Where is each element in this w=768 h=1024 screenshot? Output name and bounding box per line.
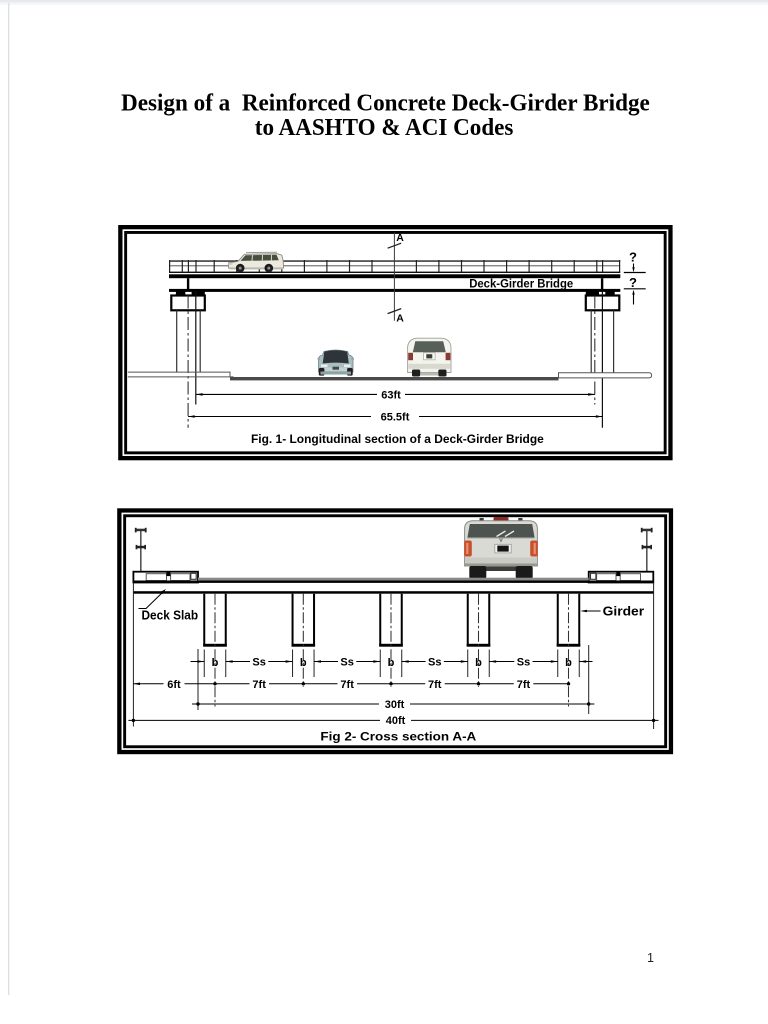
svg-text:Girder: Girder: [603, 604, 645, 618]
svg-text:b: b: [565, 657, 572, 669]
svg-text:7ft: 7ft: [517, 679, 531, 691]
svg-text:Ss: Ss: [517, 657, 530, 669]
svg-text:Ss: Ss: [252, 657, 265, 669]
svg-text:30ft: 30ft: [385, 699, 405, 711]
svg-text:7ft: 7ft: [252, 679, 266, 691]
svg-text:b: b: [388, 657, 395, 669]
svg-text:Deck-Girder Bridge: Deck-Girder Bridge: [469, 278, 573, 290]
svg-text:?: ?: [629, 249, 637, 264]
svg-text:7ft: 7ft: [340, 679, 354, 691]
svg-text:b: b: [212, 657, 219, 669]
svg-text:b: b: [300, 657, 307, 669]
svg-text:Fig 2- Cross section A-A: Fig 2- Cross section A-A: [320, 730, 476, 744]
svg-text:Ss: Ss: [428, 657, 441, 669]
svg-text:Design of a Reinforced Concre: Design of a Reinforced Concrete Deck-Gir…: [121, 90, 650, 117]
svg-text:65.5ft: 65.5ft: [381, 411, 410, 423]
svg-text:A: A: [396, 313, 404, 325]
svg-text:to AASHTO & ACI Codes: to AASHTO & ACI Codes: [255, 114, 514, 141]
svg-text:A: A: [396, 232, 404, 244]
svg-text:63ft: 63ft: [381, 389, 401, 401]
svg-text:?: ?: [629, 275, 637, 290]
svg-text:Deck Slab: Deck Slab: [142, 609, 199, 623]
svg-text:b: b: [475, 657, 482, 669]
svg-text:Fig. 1- Longitudinal section o: Fig. 1- Longitudinal section of a Deck-G…: [251, 434, 544, 446]
svg-text:40ft: 40ft: [386, 715, 406, 727]
svg-text:Ss: Ss: [340, 657, 353, 669]
svg-text:6ft: 6ft: [167, 679, 181, 691]
svg-text:1: 1: [647, 951, 654, 965]
svg-text:7ft: 7ft: [428, 679, 442, 691]
